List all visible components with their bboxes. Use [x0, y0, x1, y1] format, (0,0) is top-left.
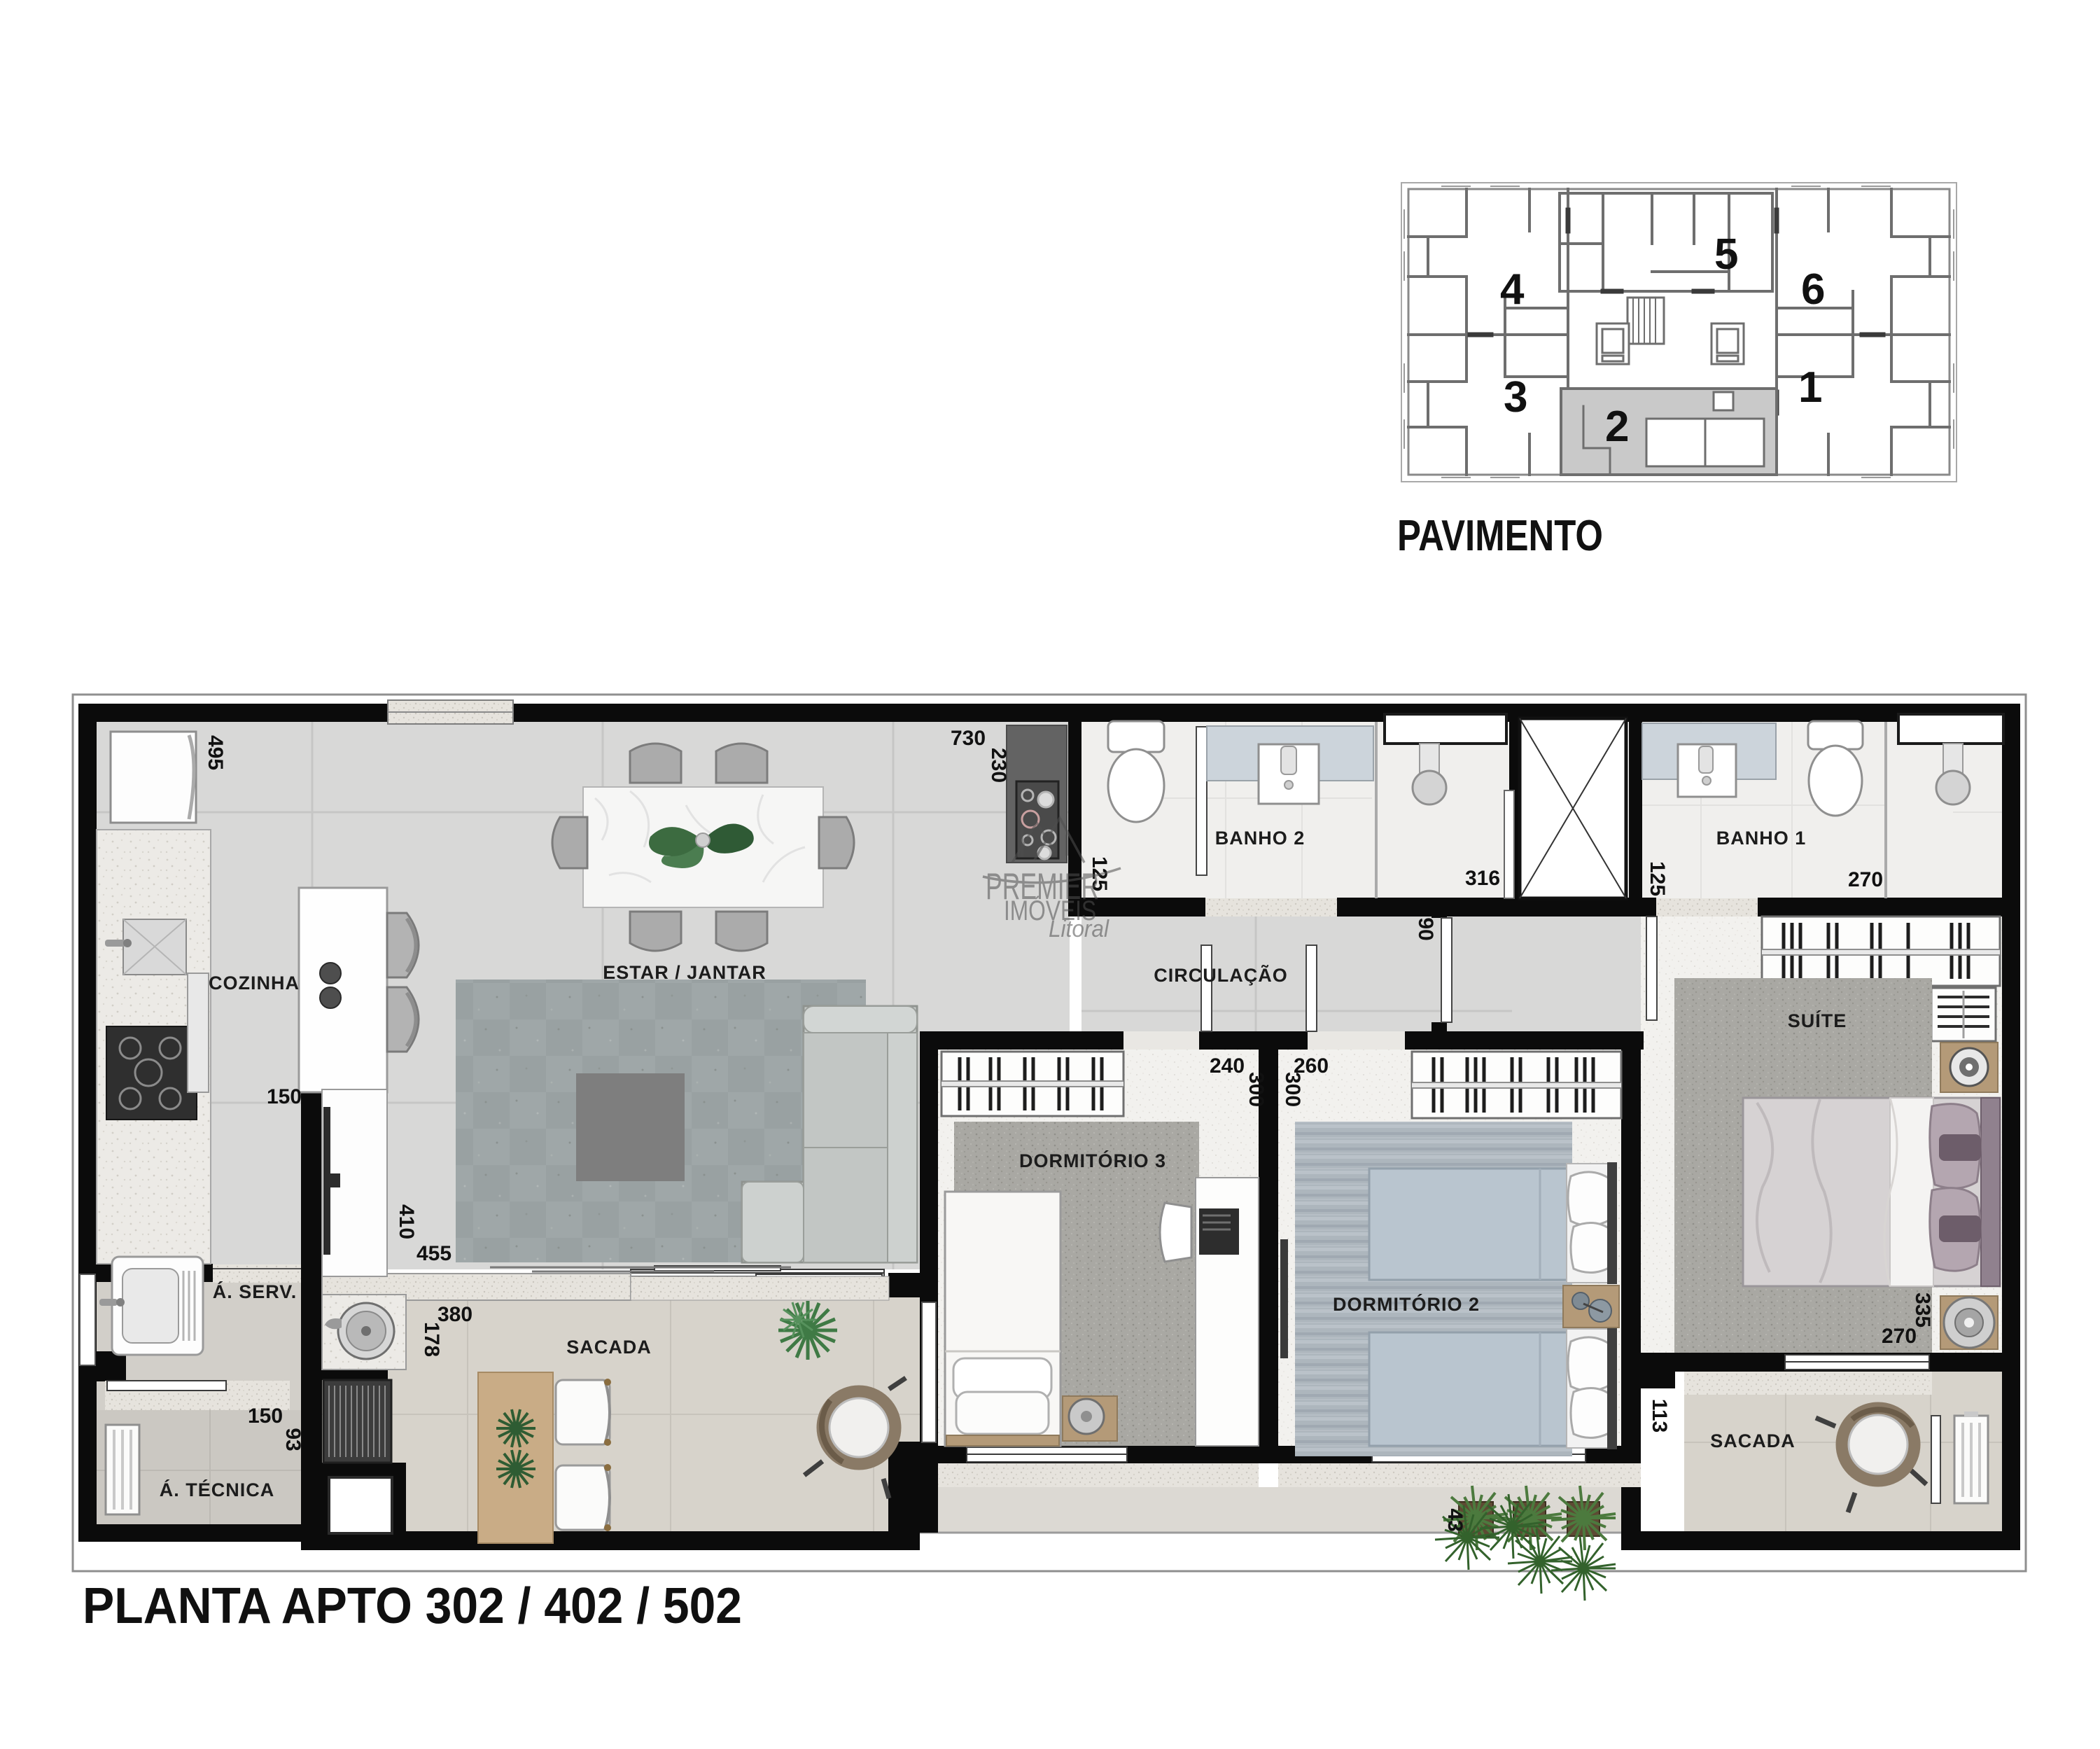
svg-text:113: 113 — [1648, 1399, 1671, 1433]
svg-text:335: 335 — [1911, 1292, 1934, 1328]
svg-text:PLANTA APTO 302 / 402 / 502: PLANTA APTO 302 / 402 / 502 — [83, 1578, 742, 1634]
svg-text:125: 125 — [1646, 861, 1669, 896]
svg-text:Á. SERV.: Á. SERV. — [213, 1281, 297, 1302]
svg-text:150: 150 — [248, 1405, 283, 1428]
svg-text:150: 150 — [267, 1085, 302, 1108]
svg-text:CIRCULAÇÃO: CIRCULAÇÃO — [1154, 964, 1288, 986]
svg-text:90: 90 — [1414, 917, 1437, 940]
svg-text:300: 300 — [1281, 1072, 1304, 1107]
svg-text:5: 5 — [1714, 230, 1738, 279]
svg-text:495: 495 — [204, 735, 227, 770]
svg-text:300: 300 — [1245, 1072, 1268, 1107]
svg-text:240: 240 — [1210, 1054, 1245, 1078]
svg-text:SUÍTE: SUÍTE — [1788, 1010, 1847, 1031]
svg-text:BANHO 2: BANHO 2 — [1215, 828, 1305, 849]
svg-text:230: 230 — [987, 748, 1010, 783]
svg-text:Litoral: Litoral — [1049, 916, 1109, 942]
svg-text:SACADA: SACADA — [566, 1337, 652, 1358]
svg-text:3: 3 — [1504, 373, 1527, 421]
svg-text:2: 2 — [1605, 403, 1629, 451]
svg-text:SACADA: SACADA — [1710, 1430, 1795, 1451]
svg-text:410: 410 — [395, 1204, 418, 1239]
svg-text:43: 43 — [1443, 1508, 1466, 1531]
svg-text:93: 93 — [281, 1428, 304, 1451]
svg-text:ESTAR / JANTAR: ESTAR / JANTAR — [603, 962, 766, 983]
svg-text:PAVIMENTO: PAVIMENTO — [1397, 512, 1603, 560]
svg-text:6: 6 — [1801, 265, 1825, 314]
svg-text:1: 1 — [1798, 363, 1822, 412]
svg-text:Á. TÉCNICA: Á. TÉCNICA — [160, 1479, 275, 1500]
svg-text:BANHO 1: BANHO 1 — [1716, 828, 1807, 849]
svg-text:455: 455 — [416, 1242, 451, 1265]
svg-text:316: 316 — [1465, 867, 1500, 890]
svg-text:DORMITÓRIO 2: DORMITÓRIO 2 — [1333, 1293, 1480, 1315]
svg-text:DORMITÓRIO 3: DORMITÓRIO 3 — [1019, 1150, 1166, 1171]
svg-text:270: 270 — [1848, 868, 1883, 891]
svg-text:COZINHA: COZINHA — [209, 973, 300, 994]
svg-text:178: 178 — [420, 1322, 443, 1357]
svg-text:730: 730 — [951, 727, 986, 750]
svg-text:270: 270 — [1882, 1325, 1917, 1348]
svg-text:4: 4 — [1500, 265, 1525, 314]
